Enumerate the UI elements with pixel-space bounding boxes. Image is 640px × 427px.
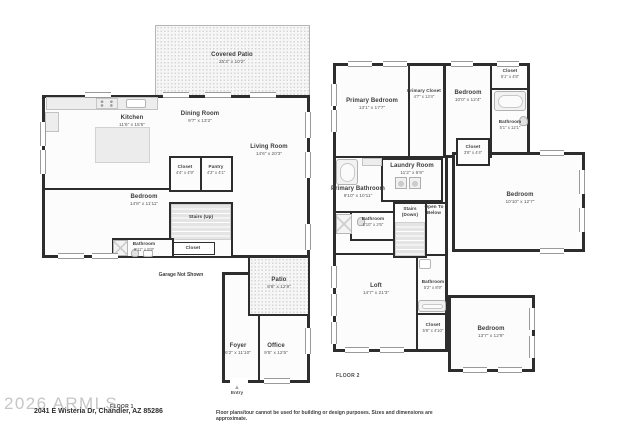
room-label-closet-small: Closet 3'8" x 4'4" (456, 144, 490, 155)
room-dims: 10'0" x 12'4" (438, 98, 498, 104)
room-label-stairs-up: Stairs (Up) (172, 214, 230, 220)
window (451, 61, 473, 67)
room-dims: 11'6" x 15'5" (100, 123, 164, 129)
room-name: Office (248, 343, 304, 351)
room-label-living: Living Room 14'6" x 20'3" (237, 144, 301, 158)
window (345, 347, 369, 353)
wall (333, 253, 395, 255)
wall (416, 313, 447, 315)
room-dims: 5'2" x 8'9" (413, 285, 453, 290)
room-dims: 10'10" x 12'7" (489, 200, 551, 206)
room-name: Closet (172, 245, 214, 251)
entry-opening (230, 378, 248, 384)
room-name: Bedroom (460, 326, 522, 334)
room-name: Bedroom (489, 192, 551, 200)
room-name: Patio (250, 277, 308, 285)
room-dims: 9'8" x 12'9" (250, 285, 308, 291)
window (348, 61, 372, 67)
room-label-closet-tr: Closet 5'1" x 4'8" (493, 68, 527, 79)
window (85, 92, 111, 98)
stairs-steps (171, 204, 231, 240)
floor1-tag: FLOOR 1 (110, 404, 134, 410)
window (40, 150, 46, 174)
room-dims: 13'7" x 12'9" (460, 334, 522, 340)
window (305, 328, 311, 354)
room-dims: 5'1" x 12'1" (492, 125, 528, 130)
room-label-closet-bottom: Closet 5'8" x 4'10" (414, 322, 452, 333)
room-dims: 5'10" x 2'6" (350, 222, 396, 227)
room-dims: 11'2" x 6'9" (383, 171, 441, 177)
floor2-tag: FLOOR 2 (336, 373, 360, 379)
wall (42, 188, 171, 190)
room-label-dining: Dining Room 9'7" x 13'2" (168, 111, 232, 125)
window (331, 322, 337, 344)
bathtub-icon (418, 300, 446, 312)
room-dims: 9'7" x 13'2" (168, 119, 232, 125)
room-name: Bathroom (116, 241, 172, 247)
room-label-bedroom4: Bedroom 13'7" x 12'9" (460, 326, 522, 340)
window (331, 294, 337, 316)
room-dims: 9'5" x 12'5" (248, 351, 304, 357)
window (540, 248, 564, 254)
room-label-loft: Loft 14'7" x 21'3" (345, 283, 407, 297)
room-name: Bedroom (112, 194, 176, 202)
room-name: Closet (168, 164, 202, 170)
room-name: Loft (345, 283, 407, 291)
room-label-bedroom1: Bedroom 14'8" x 11'11" (112, 194, 176, 208)
window (380, 347, 404, 353)
stairs-steps (395, 222, 425, 256)
washer-icon (395, 177, 407, 189)
room-name: Closet (414, 322, 452, 328)
room-name: Kitchen (100, 115, 164, 123)
window (331, 266, 337, 288)
room-dims: 9'10" x 10'11" (331, 194, 385, 200)
wall (427, 254, 446, 256)
bath-sink-icon (419, 259, 431, 269)
room-name: Primary Bedroom (337, 98, 407, 106)
window (540, 150, 564, 156)
room-name: Closet (493, 68, 527, 74)
window (163, 92, 189, 98)
room-dims: 13'1" x 17'7" (337, 106, 407, 112)
floorplan-canvas: Covered Patio 25'3" x 10'2" Kitchen 11'6… (0, 0, 640, 427)
room-dims: 14'6" x 20'3" (237, 152, 301, 158)
room-label-closet-under-stairs: Closet (172, 245, 214, 251)
room-label-open-to-below: Open To Below (423, 204, 445, 215)
window (305, 152, 311, 178)
room-dims: 14'8" x 11'11" (112, 202, 176, 208)
room-dims: 4'3" x 4'1" (199, 170, 233, 175)
room-name: Closet (456, 144, 490, 150)
window (92, 253, 118, 259)
room-name: Bathroom (413, 279, 453, 285)
room-name: Covered Patio (192, 52, 272, 60)
room-name: Stairs (Down) (398, 206, 422, 217)
room-dims: 5'8" x 4'10" (414, 328, 452, 333)
window (579, 170, 585, 194)
vanity-icon (362, 158, 382, 166)
wall (490, 63, 492, 158)
room-label-pantry: Pantry 4'3" x 4'1" (199, 164, 233, 175)
window (383, 61, 407, 67)
room-dims: 5'1" x 4'8" (493, 74, 527, 79)
window (497, 61, 519, 67)
room-name: Pantry (199, 164, 233, 170)
fridge-icon (45, 112, 59, 132)
room-name: Bedroom (438, 90, 498, 98)
room-label-primary-bedroom: Primary Bedroom 13'1" x 17'7" (337, 98, 407, 112)
room-name: Open To Below (423, 204, 445, 215)
wall (408, 63, 410, 156)
room-label-patio: Patio 9'8" x 12'9" (250, 277, 308, 291)
room-name: Primary Bathroom (331, 186, 385, 194)
room-dims: 14'7" x 21'3" (345, 291, 407, 297)
window (579, 208, 585, 232)
room-label-bathroom-center: Bathroom 5'2" x 8'9" (413, 279, 453, 290)
room-dims: 4'4" x 4'9" (168, 170, 202, 175)
room-label-bathroom1: Bathroom 9'11" x 5'9" (116, 241, 172, 252)
window (205, 92, 231, 98)
stove-icon (96, 98, 118, 109)
window (250, 92, 276, 98)
room-name: Dining Room (168, 111, 232, 119)
room-name: Stairs (Up) (172, 214, 230, 220)
window (331, 110, 337, 132)
room-label-stairs-down: Stairs (Down) (398, 206, 422, 217)
kitchen-island (95, 127, 150, 163)
room-dims: 9'11" x 5'9" (116, 247, 172, 252)
room-label-bathroom-small: Bathroom 5'10" x 2'6" (350, 216, 396, 227)
room-label-bedroom3: Bedroom 10'10" x 12'7" (489, 192, 551, 206)
window (498, 367, 522, 373)
room-label-bathroom-tr: Bathroom 5'1" x 12'1" (492, 119, 528, 130)
garage-note: Garage Not Shown (145, 272, 217, 278)
entry-marker: ▲ Entry (224, 385, 250, 396)
bathtub-icon (494, 91, 526, 111)
room-label-primary-bathroom: Primary Bathroom 9'10" x 10'11" (331, 186, 385, 200)
kitchen-sink-icon (126, 99, 146, 108)
room-name: Living Room (237, 144, 301, 152)
room-label-closet1: Closet 4'4" x 4'9" (168, 164, 202, 175)
address: 2041 E Wisteria Dr, Chandler, AZ 85286 (34, 408, 163, 415)
window (58, 253, 84, 259)
room-label-office: Office 9'5" x 12'5" (248, 343, 304, 357)
bathtub-icon (336, 159, 358, 185)
room-dims: 25'3" x 10'2" (192, 60, 272, 66)
window (40, 122, 46, 146)
window (529, 336, 535, 358)
disclaimer: Floor plans/tour cannot be used for buil… (216, 410, 456, 422)
room-label-laundry: Laundry Room 11'2" x 6'9" (383, 163, 441, 177)
window (463, 367, 487, 373)
room-name: Laundry Room (383, 163, 441, 171)
room-label-covered-patio: Covered Patio 25'3" x 10'2" (192, 52, 272, 66)
room-label-bedroom2: Bedroom 10'0" x 12'4" (438, 90, 498, 104)
room-name: Bathroom (492, 119, 528, 125)
window (305, 112, 311, 138)
room-name: Bathroom (350, 216, 396, 222)
room-label-kitchen: Kitchen 11'6" x 15'5" (100, 115, 164, 129)
dryer-icon (409, 177, 421, 189)
room-dims: 3'8" x 4'4" (456, 150, 490, 155)
window (529, 308, 535, 330)
entry-label: Entry (224, 391, 250, 396)
window (264, 378, 290, 384)
window (305, 224, 311, 250)
